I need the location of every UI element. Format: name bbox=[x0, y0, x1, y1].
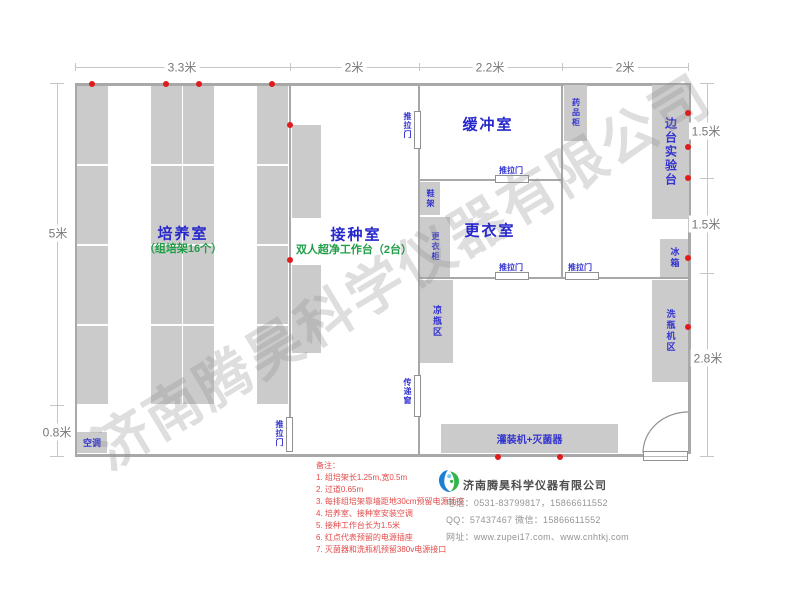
wall bbox=[289, 86, 291, 417]
dimension-line bbox=[75, 63, 76, 71]
transfer-window bbox=[414, 375, 421, 417]
dim-top-4: 2米 bbox=[613, 59, 638, 76]
dim-top-3: 2.2米 bbox=[473, 59, 508, 76]
dimension-line bbox=[419, 63, 420, 71]
dimension-line bbox=[700, 178, 714, 179]
wardrobe-label: 更衣柜 bbox=[431, 232, 439, 262]
power-outlet-dot bbox=[269, 81, 275, 87]
wall bbox=[529, 277, 565, 279]
sliding-door-label: 推拉门 bbox=[568, 262, 592, 273]
note-item: 5. 接种工作台长为1.5米 bbox=[316, 520, 464, 532]
dim-left-1: 5米 bbox=[46, 225, 71, 242]
power-outlet-dot bbox=[163, 81, 169, 87]
company-block: 济南腾昊科学仪器有限公司 电话：0531-83799817，1586661155… bbox=[437, 468, 461, 500]
room-sublabel-inoculation: 双人超净工作台（2台） bbox=[296, 241, 412, 257]
note-item: 4. 培养室、接种室安装空调 bbox=[316, 508, 464, 520]
room-label-buffer: 缓冲室 bbox=[462, 114, 513, 135]
wardrobe: 更衣柜 bbox=[420, 217, 450, 277]
dimension-line bbox=[562, 63, 563, 71]
dimension-line bbox=[50, 456, 64, 457]
sliding-door bbox=[495, 175, 529, 183]
medicine-cabinet: 药品柜 bbox=[564, 85, 587, 141]
sliding-door-label: 推拉门 bbox=[499, 262, 523, 273]
air-conditioner-label: 空调 bbox=[83, 436, 101, 449]
power-outlet-dot bbox=[685, 175, 691, 181]
power-outlet-dot bbox=[685, 110, 691, 116]
wall bbox=[420, 179, 495, 181]
power-outlet-dot bbox=[89, 81, 95, 87]
side-lab-bench-label: 边台实验台 bbox=[665, 117, 677, 187]
wall bbox=[418, 417, 420, 454]
dimension-line bbox=[57, 83, 58, 457]
refrigerator: 冰箱 bbox=[660, 239, 688, 277]
wall bbox=[599, 277, 688, 279]
room-label-changing: 更衣室 bbox=[464, 220, 515, 241]
dim-left-2: 0.8米 bbox=[40, 424, 75, 441]
dimension-line bbox=[700, 273, 714, 274]
bottle-cooling-area-label: 凉瓶区 bbox=[432, 305, 441, 338]
power-outlet-dot bbox=[685, 324, 691, 330]
sliding-door bbox=[286, 417, 293, 452]
company-name: 济南腾昊科学仪器有限公司 bbox=[463, 477, 607, 493]
shoe-rack: 鞋架 bbox=[420, 182, 440, 215]
side-lab-bench: 边台实验台 bbox=[652, 85, 689, 219]
wall bbox=[418, 86, 420, 111]
note-item: 7. 灭菌器和洗瓶机预留380v电源接口 bbox=[316, 544, 464, 556]
dimension-line bbox=[50, 405, 64, 406]
filling-machine-sterilizer: 灌装机+灭菌器 bbox=[441, 424, 618, 453]
dimension-line bbox=[290, 63, 291, 71]
power-outlet-dot bbox=[557, 454, 563, 460]
company-phone: 电话：0531-83799817，15866611552 bbox=[446, 496, 608, 509]
company-website: 网址：www.zupei17.com、www.cnhtkj.com bbox=[446, 530, 629, 543]
refrigerator-label: 冰箱 bbox=[670, 247, 679, 269]
dimension-line bbox=[700, 83, 714, 84]
dim-right-1: 1.5米 bbox=[689, 123, 724, 140]
sliding-door bbox=[495, 272, 529, 280]
dimension-line bbox=[700, 456, 714, 457]
power-outlet-dot bbox=[685, 255, 691, 261]
floor-plan: 3.3米 2米 2.2米 2米 5米 0.8米 1.5米 1.5米 2.8米 济… bbox=[0, 0, 800, 600]
bottle-washer-area: 洗瓶机区 bbox=[652, 280, 688, 382]
power-outlet-dot bbox=[196, 81, 202, 87]
sliding-door bbox=[414, 111, 421, 149]
medicine-cabinet-label: 药品柜 bbox=[572, 98, 580, 128]
power-outlet-dot bbox=[287, 257, 293, 263]
company-logo-icon bbox=[437, 468, 461, 495]
power-outlet-dot bbox=[287, 122, 293, 128]
culture-rack bbox=[77, 86, 108, 405]
bottle-washer-area-label: 洗瓶机区 bbox=[666, 309, 675, 353]
dim-top-1: 3.3米 bbox=[165, 59, 200, 76]
dim-right-2: 1.5米 bbox=[689, 216, 724, 233]
note-item: 6. 红点代表预留的电源插座 bbox=[316, 532, 464, 544]
wall bbox=[420, 277, 495, 279]
sliding-door-label: 推拉门 bbox=[274, 420, 285, 447]
dimension-line bbox=[50, 83, 64, 84]
dimension-line bbox=[688, 63, 689, 71]
clean-bench bbox=[292, 265, 321, 353]
filling-machine-sterilizer-label: 灌装机+灭菌器 bbox=[497, 431, 563, 446]
air-conditioner: 空调 bbox=[77, 432, 107, 453]
wall bbox=[529, 179, 562, 181]
culture-rack bbox=[257, 86, 288, 405]
shoe-rack-label: 鞋架 bbox=[426, 189, 434, 209]
bottle-cooling-area: 凉瓶区 bbox=[420, 280, 453, 363]
entrance-door-leaf bbox=[643, 451, 688, 461]
company-qq-wechat: QQ：57437467 微信：15866611552 bbox=[446, 513, 601, 526]
dim-right-3: 2.8米 bbox=[691, 350, 726, 367]
transfer-window-label: 传递窗 bbox=[402, 378, 413, 405]
wall bbox=[561, 86, 563, 278]
sliding-door-label: 推拉门 bbox=[499, 165, 523, 176]
sliding-door-label: 推拉门 bbox=[402, 112, 413, 139]
sliding-door bbox=[565, 272, 599, 280]
dim-top-2: 2米 bbox=[342, 59, 367, 76]
clean-bench bbox=[292, 125, 321, 218]
power-outlet-dot bbox=[495, 454, 501, 460]
power-outlet-dot bbox=[685, 144, 691, 150]
room-sublabel-culture: （组培架16个） bbox=[144, 240, 222, 256]
